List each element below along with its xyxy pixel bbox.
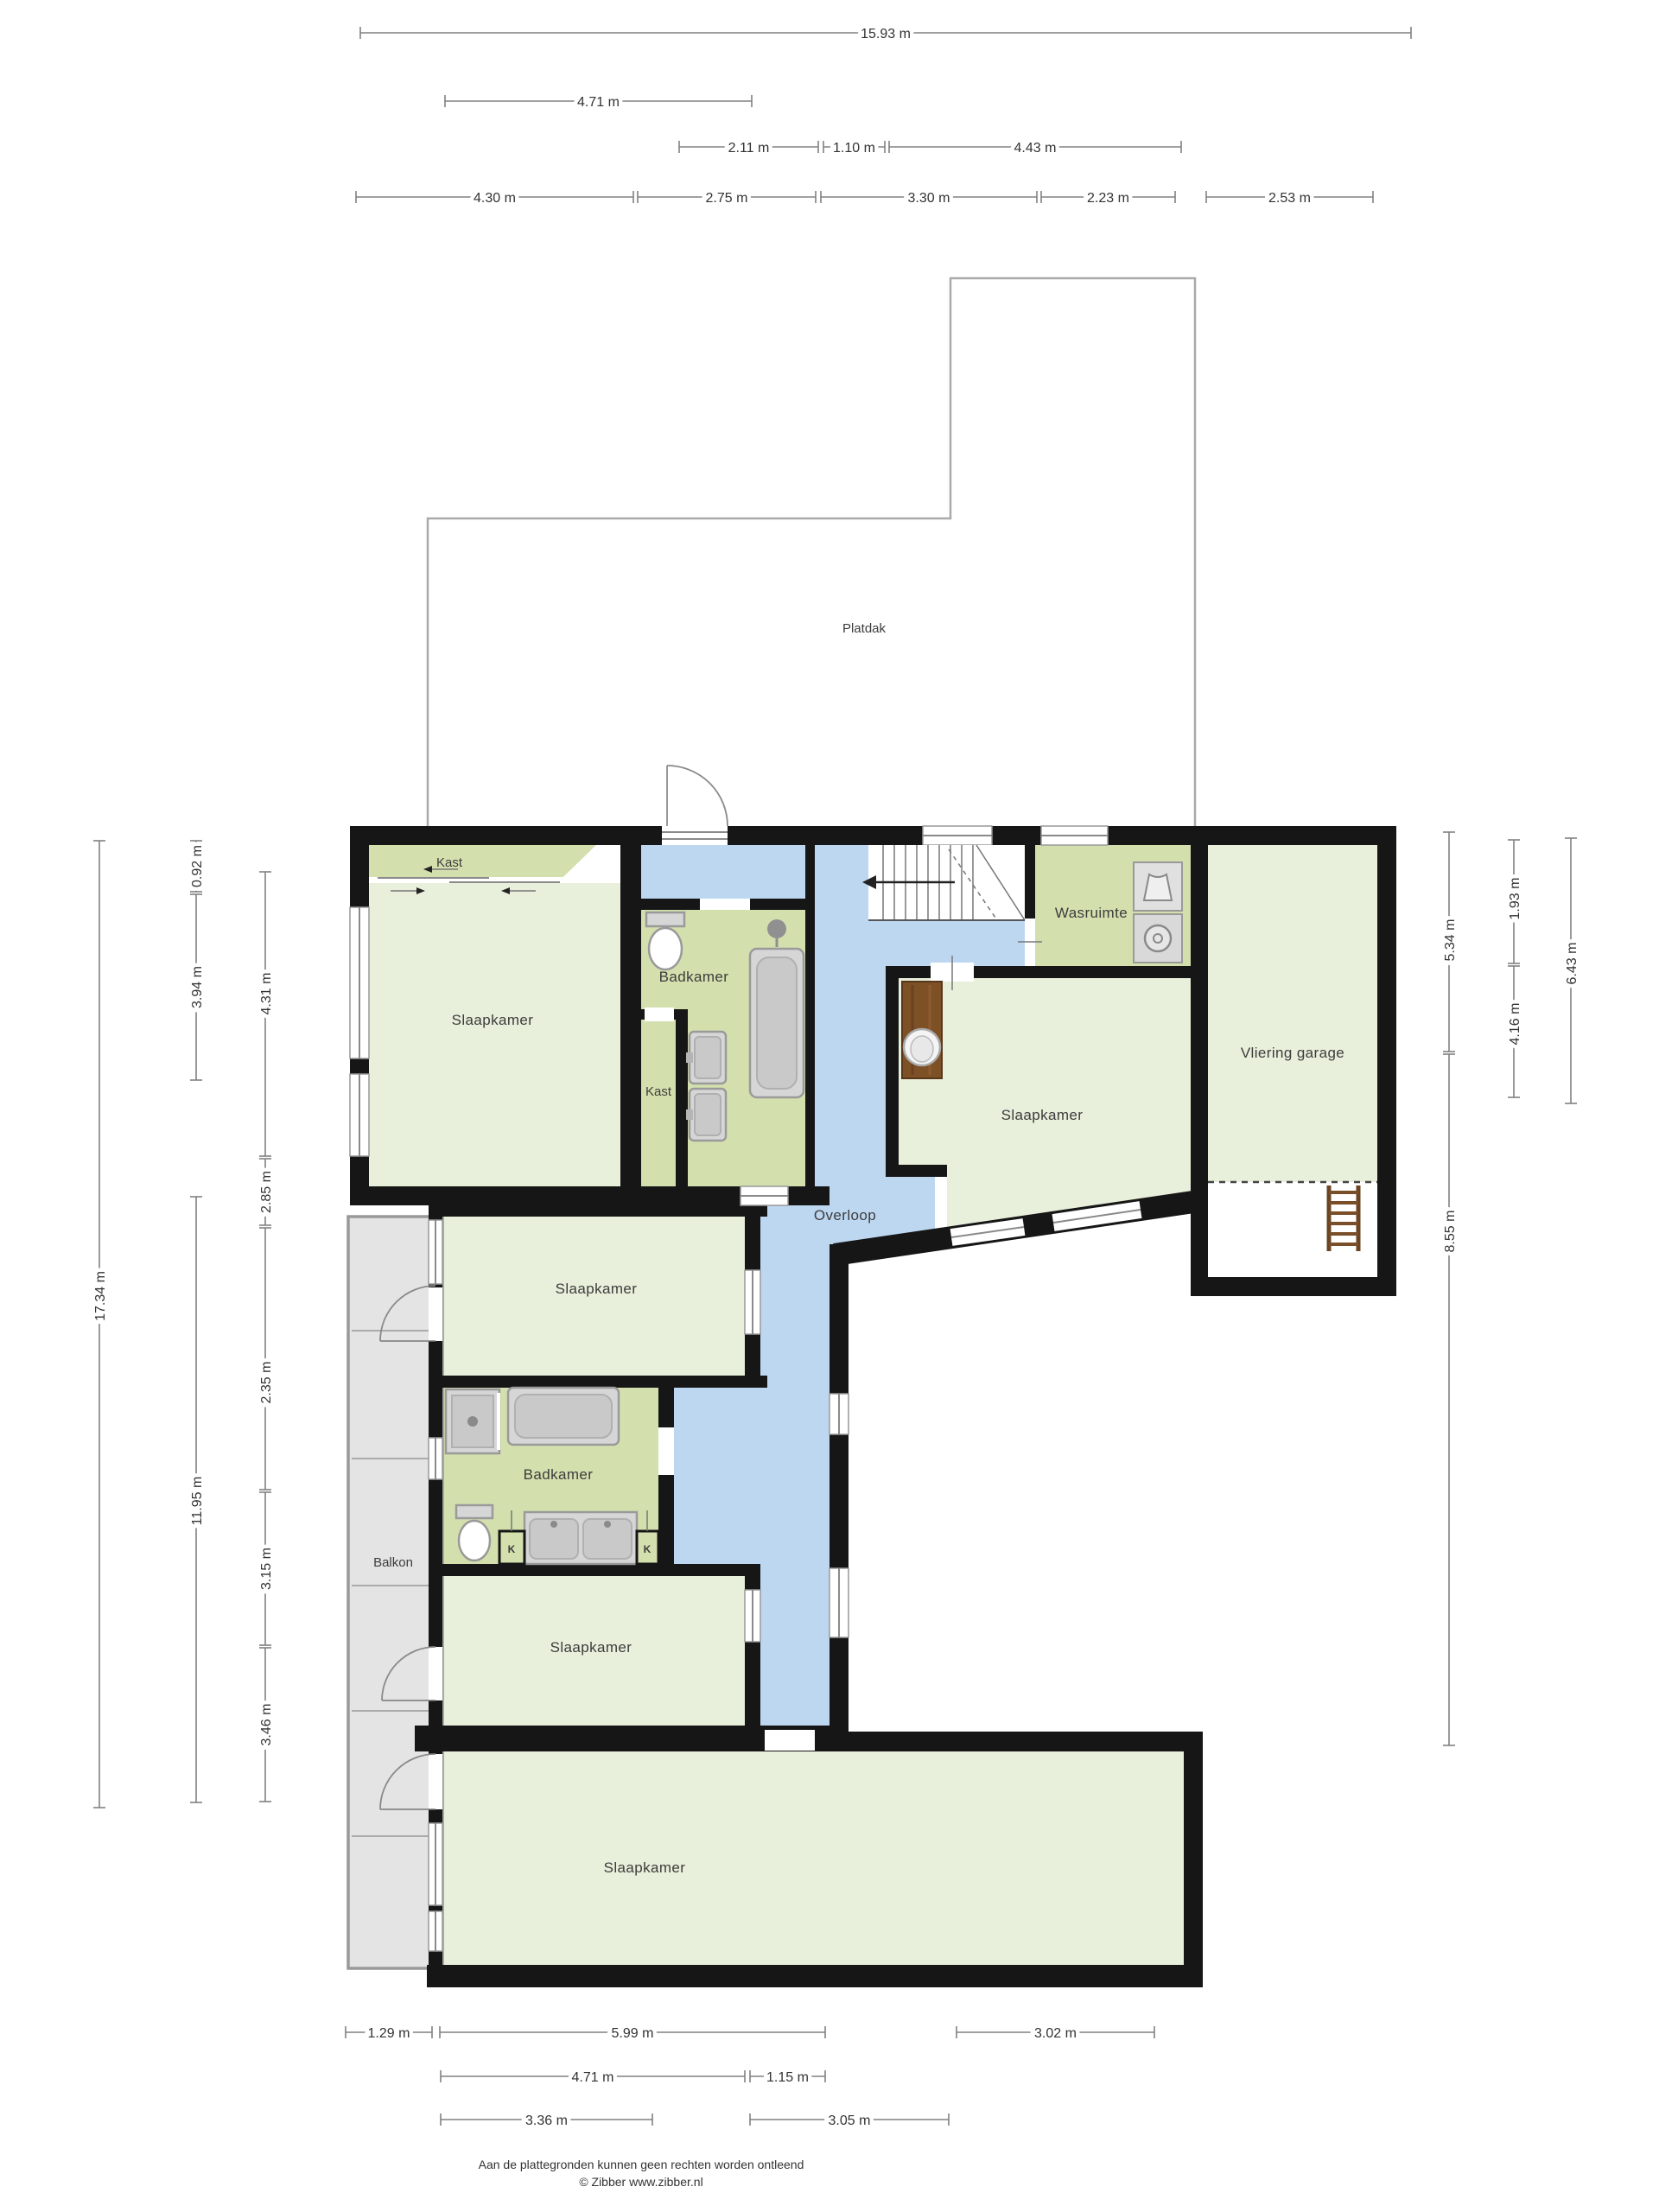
floor-plan: Platdak [0,0,1659,2212]
dimension-line: 3.46 m [259,1648,274,1802]
window-left-2 [350,1074,369,1156]
svg-text:15.93 m: 15.93 m [861,27,911,41]
window-bottom-left-2 [429,1911,442,1951]
svg-text:4.43 m: 4.43 m [1014,141,1057,156]
svg-text:2.53 m: 2.53 m [1268,191,1311,206]
dimension-line: 4.71 m [441,2070,745,2085]
svg-text:2.75 m: 2.75 m [706,191,748,206]
dimension-line: 1.29 m [346,2026,432,2041]
dimension-line: 2.75 m [638,191,816,206]
dimension-line: 3.05 m [750,2113,949,2128]
svg-text:3.02 m: 3.02 m [1034,2026,1077,2041]
footer-copyright: © Zibber www.zibber.nl [579,2175,702,2189]
window-top-2 [1041,826,1108,845]
dimension-line: 0.92 m [190,841,205,892]
room-label-slaapkamer-lowmid: Slaapkamer [550,1639,632,1656]
window-badkamer-top [741,1186,788,1205]
svg-text:4.31 m: 4.31 m [259,973,274,1015]
dimension-line: 11.95 m [190,1197,205,1802]
dimension-line: 4.31 m [259,872,274,1156]
hall-top-strip [641,845,805,899]
room-label-overloop: Overloop [814,1207,876,1224]
dimension-line: 4.43 m [889,141,1181,156]
room-label-balkon: Balkon [373,1555,413,1570]
dimension-line: 3.15 m [259,1492,274,1645]
footer: Aan de plattegronden kunnen geen rechten… [479,2158,804,2189]
room-label-slaapkamer-tl: Slaapkamer [452,1012,534,1028]
room-label-platdak: Platdak [842,621,887,636]
hall-by-stairs [815,845,868,920]
dimension-line: 3.02 m [957,2026,1154,2041]
dimension-line: 2.23 m [1041,191,1175,206]
toilet-low-icon [456,1505,493,1560]
dimension-line: 4.71 m [445,95,752,110]
door-badkamer-top [700,899,750,910]
svg-text:8.55 m: 8.55 m [1443,1211,1458,1253]
dimension-line: 8.55 m [1443,1054,1458,1745]
bathtub-top-icon [750,949,804,1097]
window-lowmid-right [745,1590,760,1642]
room-label-badkamer-low: Badkamer [524,1466,594,1483]
svg-text:0.92 m: 0.92 m [190,845,205,887]
svg-text:1.15 m: 1.15 m [766,2070,809,2085]
room-slaapkamer-bottom [441,1751,1184,1965]
svg-text:5.34 m: 5.34 m [1443,919,1458,962]
hall-under-stairs [815,920,1025,966]
window-left-1 [350,907,369,1058]
double-sink-low-icon [524,1512,637,1564]
svg-text:1.10 m: 1.10 m [833,141,875,156]
dimension-line: 1.93 m [1508,840,1522,963]
dimension-line: 2.35 m [259,1228,274,1490]
svg-text:3.05 m: 3.05 m [829,2113,871,2128]
shower-low-icon [446,1389,499,1453]
window-badkamer-low-left [429,1438,442,1479]
door-balkon-1 [429,1287,442,1341]
room-label-slaapkamer-bottom: Slaapkamer [604,1859,686,1876]
room-kast-top [369,845,596,877]
svg-text:3.15 m: 3.15 m [259,1548,274,1590]
svg-text:5.99 m: 5.99 m [612,2026,654,2041]
hall-mid [815,966,886,1165]
svg-text:4.71 m: 4.71 m [577,95,620,110]
room-label-kast-small: Kast [645,1084,672,1099]
dimension-line: 2.11 m [679,141,818,156]
dimension-line: 3.94 m [190,894,205,1080]
window-corridor-2 [829,1568,849,1637]
svg-text:3.30 m: 3.30 m [908,191,950,206]
svg-text:17.34 m: 17.34 m [93,1271,108,1321]
door-kast-small [645,1007,674,1021]
room-label-k-left: K [508,1543,516,1555]
svg-text:1.29 m: 1.29 m [368,2026,410,2041]
window-top-1 [923,826,992,845]
dimension-line: 5.99 m [440,2026,825,2041]
window-bottom-left-1 [429,1823,442,1905]
svg-text:3.36 m: 3.36 m [525,2113,568,2128]
svg-text:1.93 m: 1.93 m [1508,878,1522,920]
svg-text:11.95 m: 11.95 m [190,1477,205,1526]
svg-text:2.85 m: 2.85 m [259,1171,274,1213]
svg-text:4.30 m: 4.30 m [474,191,516,206]
room-label-slaapkamer-mid: Slaapkamer [556,1281,638,1297]
svg-text:4.71 m: 4.71 m [572,2070,614,2085]
svg-text:2.35 m: 2.35 m [259,1362,274,1404]
svg-text:2.23 m: 2.23 m [1087,191,1129,206]
room-garage [1208,845,1377,1182]
toilet-top-icon [646,912,684,969]
dimension-line: 17.34 m [93,841,108,1808]
dimension-line: 4.16 m [1508,966,1522,1097]
svg-text:3.46 m: 3.46 m [259,1704,274,1746]
dimension-line: 5.34 m [1443,832,1458,1052]
door-balkon-2 [429,1647,442,1700]
dimension-line: 15.93 m [360,27,1411,41]
stairs [862,845,1025,920]
room-kast-small [641,1020,676,1186]
bathtub-low-icon [508,1388,619,1445]
footer-disclaimer: Aan de plattegronden kunnen geen rechten… [479,2158,804,2171]
room-label-slaapkamer-right: Slaapkamer [1001,1107,1084,1123]
door-balkon-3 [429,1754,442,1809]
svg-text:2.11 m: 2.11 m [728,141,770,156]
window-corridor-1 [829,1394,849,1434]
room-label-badkamer-top: Badkamer [659,969,729,985]
dimension-line: 2.53 m [1206,191,1373,206]
door-badkamer-low [658,1427,674,1475]
dimension-line: 1.10 m [823,141,885,156]
window-mid-right [745,1270,760,1334]
dimension-line: 3.36 m [441,2113,652,2128]
room-label-wasruimte: Wasruimte [1055,905,1128,921]
window-mid-left [429,1220,442,1284]
dimension-line: 6.43 m [1565,838,1580,1103]
svg-text:6.43 m: 6.43 m [1565,943,1580,985]
garage-low-part [1208,1182,1377,1277]
washing-machine-icon [1134,914,1182,963]
platdak-outline [428,278,1195,826]
dimension-line: 3.30 m [821,191,1037,206]
dimension-line: 4.30 m [356,191,633,206]
laundry-basket-icon [1134,862,1182,911]
door-slaapkamer-bottom [765,1730,815,1751]
room-label-vliering-garage: Vliering garage [1241,1045,1344,1061]
svg-text:4.16 m: 4.16 m [1508,1003,1522,1046]
dimension-line: 2.85 m [259,1159,274,1225]
room-label-k-right: K [644,1543,652,1555]
vanity-sink-icon [902,982,942,1078]
room-slaapkamer-tl [369,883,620,1186]
window-diagonal-1 [951,1227,1024,1237]
room-label-kast-top: Kast [436,855,463,870]
dimension-line: 1.15 m [750,2070,825,2085]
svg-text:3.94 m: 3.94 m [190,966,205,1008]
